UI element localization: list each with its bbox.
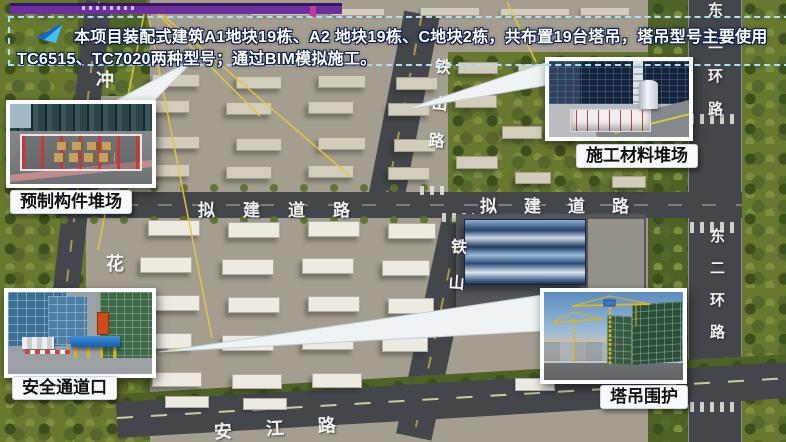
safety-passage-photo xyxy=(8,292,152,374)
callout-safety-frame xyxy=(4,288,156,378)
callout-prefab-label: 预制构件堆场 xyxy=(10,190,132,214)
material-silo xyxy=(639,80,659,109)
safety-canopy-posts xyxy=(74,346,117,358)
callout-crane-label: 塔吊围护 xyxy=(600,385,688,409)
safety-orange-hoist xyxy=(97,312,109,335)
tower-cranes xyxy=(544,292,683,380)
material-yard-photo xyxy=(549,61,689,137)
prefab-light-building xyxy=(10,104,31,128)
prefab-background-buildings xyxy=(10,104,152,131)
callout-material-frame xyxy=(545,57,693,141)
prefab-yard-photo xyxy=(10,104,152,184)
callout-safety-label: 安全通道口 xyxy=(12,376,117,400)
safety-white-tent xyxy=(22,337,54,349)
pointer-prefab xyxy=(115,57,197,103)
material-facade-light xyxy=(549,61,580,104)
pointer-material xyxy=(403,62,548,110)
prefab-component-stack xyxy=(54,153,115,162)
callout-crane-frame xyxy=(540,288,687,384)
safety-blue-canopy xyxy=(71,336,120,347)
material-fence xyxy=(570,109,651,132)
crane-enclosure-photo xyxy=(544,292,683,380)
callout-prefab-frame xyxy=(6,100,156,188)
pointer-crane xyxy=(158,295,543,352)
callout-material-label: 施工材料堆场 xyxy=(576,144,698,168)
safety-striped-barrier xyxy=(25,350,70,354)
prefab-fence xyxy=(20,134,142,171)
bim-site-plan-slide: 安江路 铁山路 铁山路 拟建道路 拟建道路 东二环路 东二环路 冲 花 xyxy=(0,0,786,442)
prefab-component-stack xyxy=(57,142,111,151)
